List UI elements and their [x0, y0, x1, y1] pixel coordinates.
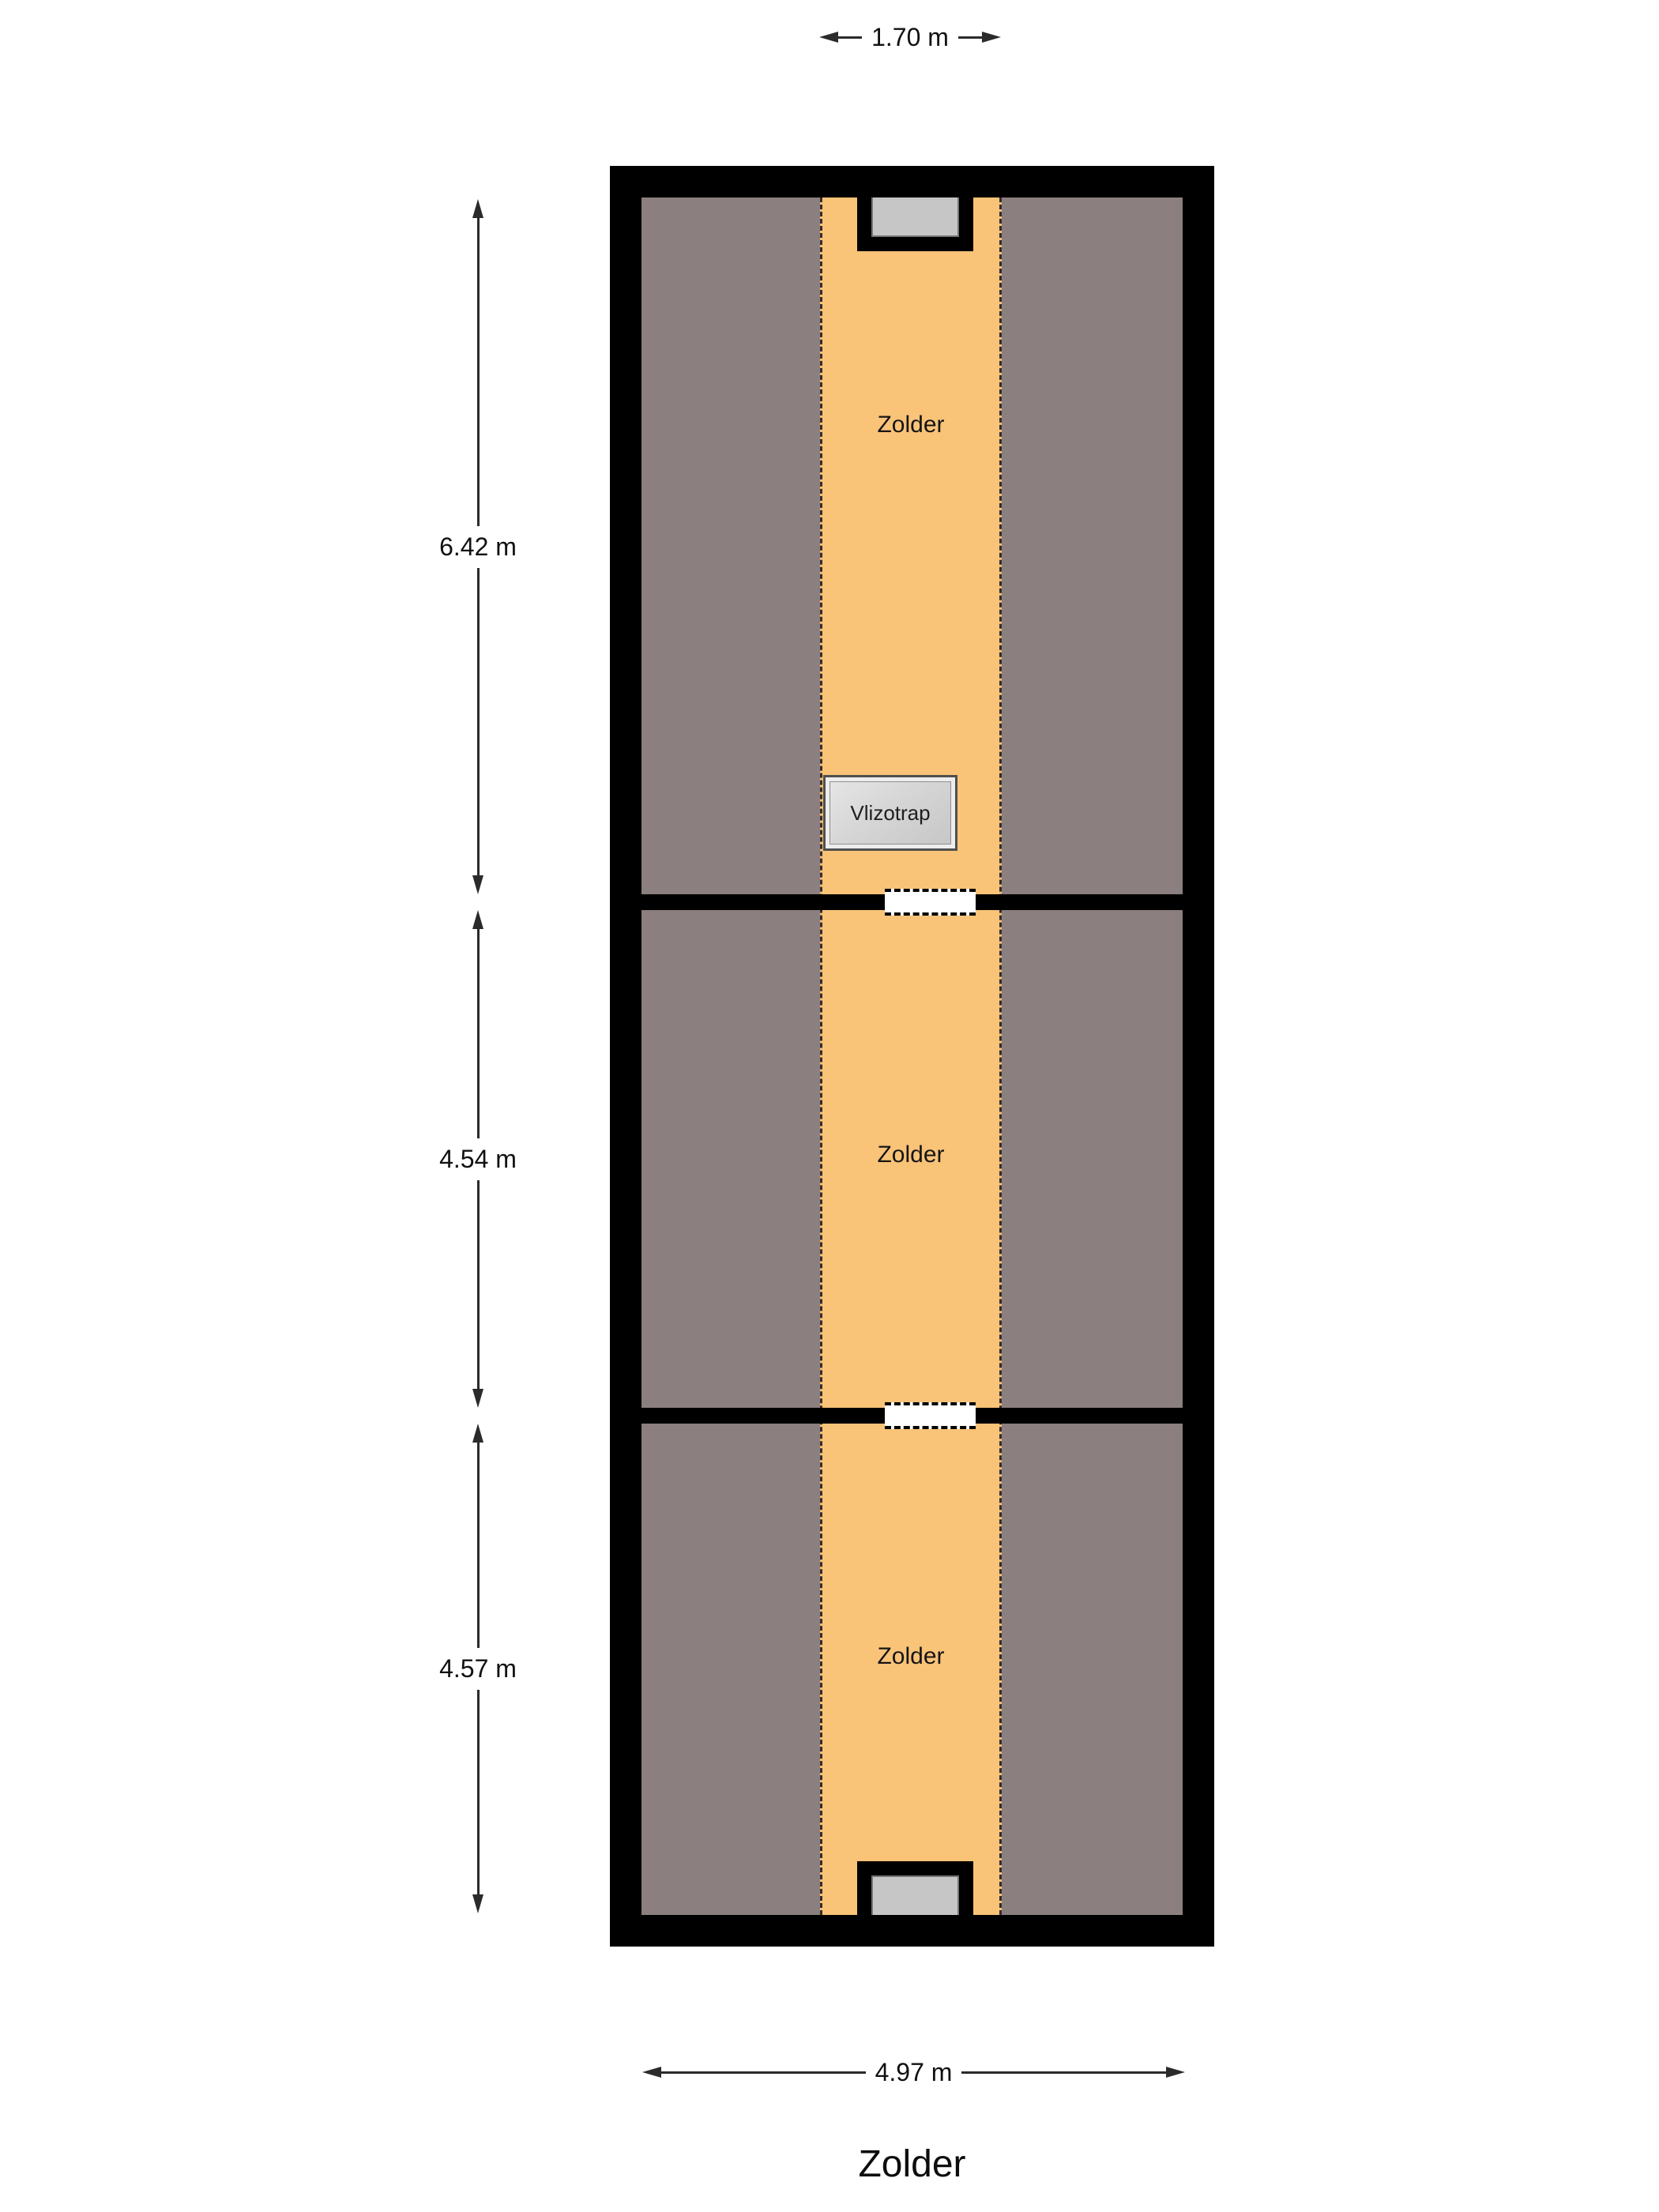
- dimension-line: [477, 568, 480, 876]
- floorplan: Zolder Zolder Zolder Vlizotrap: [610, 166, 1214, 1947]
- dimension-line: [477, 1690, 480, 1895]
- room-label: Zolder: [820, 1643, 1002, 1670]
- arrow-up-icon: [472, 910, 483, 929]
- dimension-line: [477, 1180, 480, 1390]
- wall-opening: [885, 889, 976, 916]
- floor-title: Zolder: [610, 2142, 1214, 2186]
- dimension-label: 1.70 m: [871, 23, 949, 52]
- roof-window-bottom: [857, 1861, 973, 1915]
- dimension-line: [477, 929, 480, 1138]
- loft-ladder-label: Vlizotrap: [829, 781, 951, 845]
- dimension-label: 4.97 m: [875, 2058, 953, 2087]
- roof-slope-area-left: [641, 197, 820, 1915]
- dimension-label: 6.42 m: [439, 532, 517, 562]
- dimension-line: [477, 218, 480, 526]
- dimension-bottom-width: 4.97 m: [642, 2056, 1185, 2088]
- dimension-room1-height: 6.42 m: [411, 199, 545, 894]
- roof-window-top: [857, 197, 973, 251]
- dimension-line: [477, 1443, 480, 1648]
- arrow-left-icon: [819, 32, 838, 43]
- arrow-left-icon: [642, 2067, 661, 2078]
- window-pane: [871, 197, 959, 237]
- room-label: Zolder: [820, 1142, 1002, 1168]
- dimension-line: [661, 2071, 866, 2074]
- dimension-room3-height: 4.57 m: [411, 1424, 545, 1913]
- arrow-right-icon: [982, 32, 1001, 43]
- window-pane: [871, 1875, 959, 1915]
- arrow-up-icon: [472, 199, 483, 218]
- roof-slope-area-right: [1002, 197, 1183, 1915]
- floorplan-canvas: 1.70 m 6.42 m 4.54 m 4.57 m Zolder Zolde…: [0, 0, 1659, 2212]
- arrow-up-icon: [472, 1424, 483, 1443]
- wall-opening: [885, 1402, 976, 1429]
- dimension-label: 4.54 m: [439, 1145, 517, 1174]
- dimension-room2-height: 4.54 m: [411, 910, 545, 1408]
- attic-interior: Zolder Zolder Zolder Vlizotrap: [641, 197, 1183, 1915]
- room-label: Zolder: [820, 412, 1002, 438]
- loft-ladder-hatch: Vlizotrap: [823, 775, 957, 851]
- dimension-line: [838, 36, 862, 39]
- dimension-line: [958, 36, 982, 39]
- dimension-label: 4.57 m: [439, 1654, 517, 1683]
- dimension-top-width: 1.70 m: [819, 21, 1001, 53]
- dimension-line: [961, 2071, 1166, 2074]
- arrow-right-icon: [1166, 2067, 1185, 2078]
- arrow-down-icon: [472, 1894, 483, 1913]
- arrow-down-icon: [472, 1389, 483, 1408]
- arrow-down-icon: [472, 875, 483, 894]
